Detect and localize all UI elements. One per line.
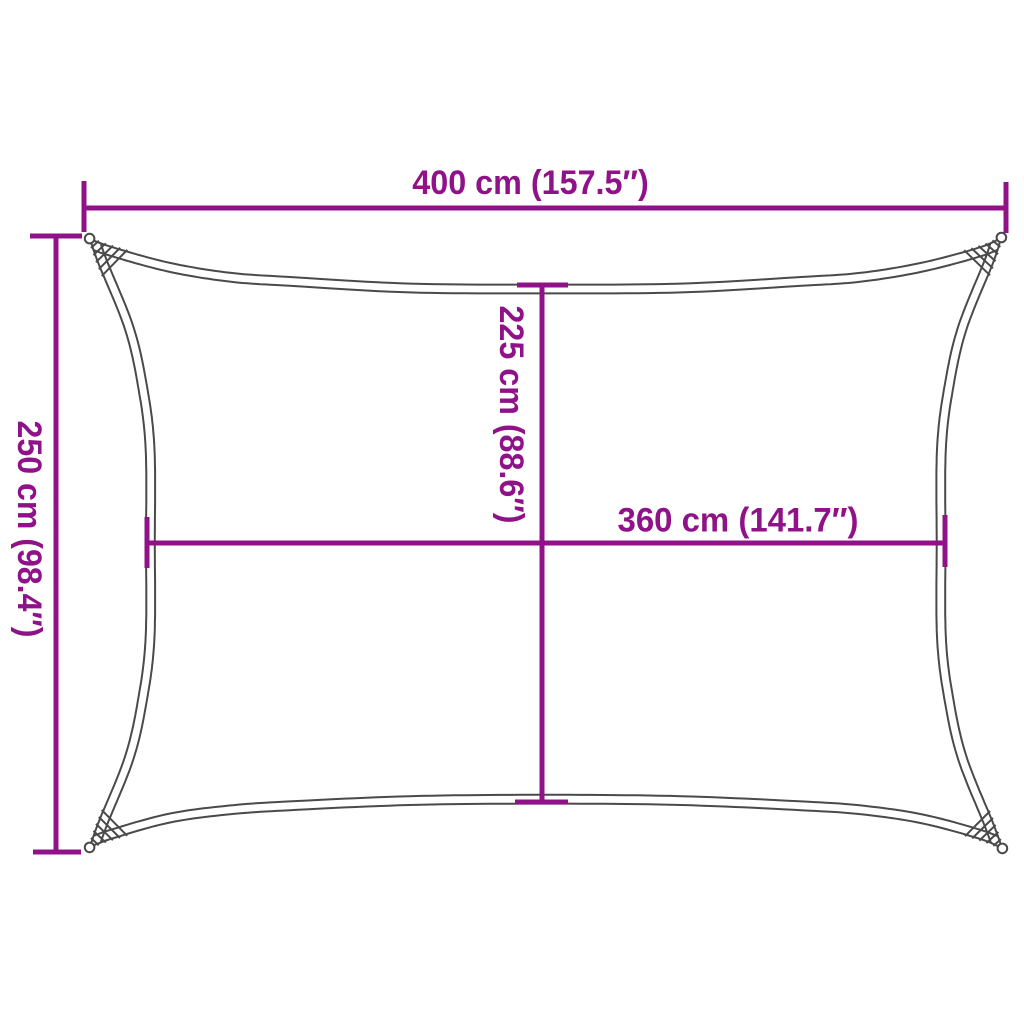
svg-text:225 cm (88.6″): 225 cm (88.6″) bbox=[492, 306, 530, 524]
svg-text:400 cm (157.5″): 400 cm (157.5″) bbox=[412, 164, 649, 202]
svg-text:360 cm (141.7″): 360 cm (141.7″) bbox=[618, 502, 859, 540]
svg-text:250 cm (98.4″): 250 cm (98.4″) bbox=[10, 421, 48, 638]
